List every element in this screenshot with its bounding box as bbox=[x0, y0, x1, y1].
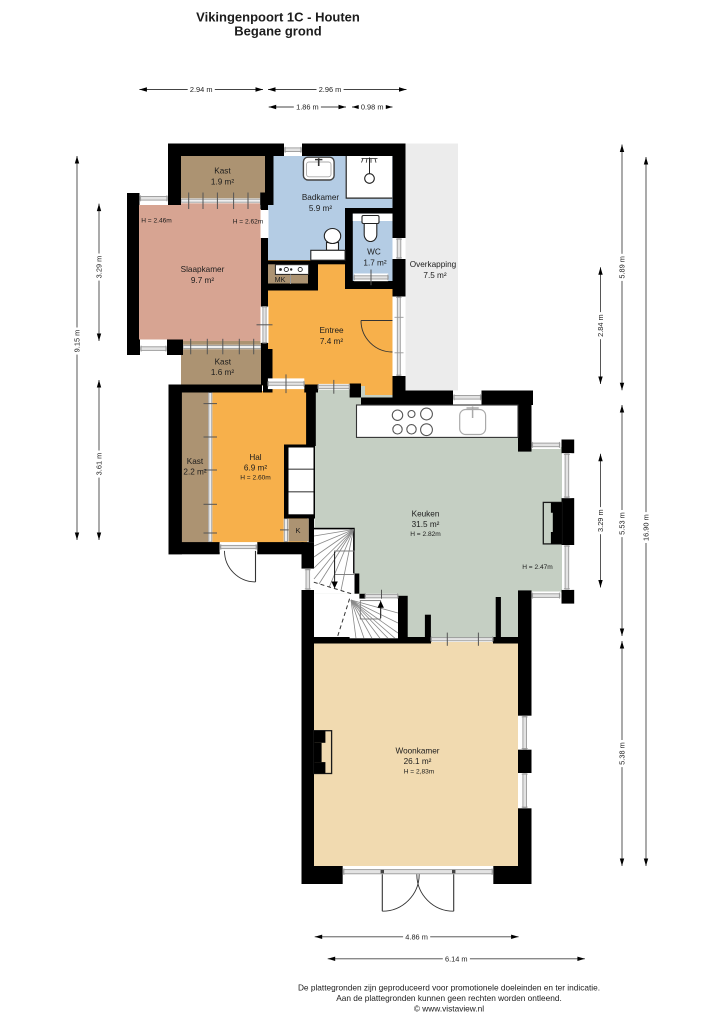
svg-text:5.38 m: 5.38 m bbox=[618, 742, 627, 765]
svg-text:Kast: Kast bbox=[187, 457, 204, 466]
svg-text:Aan de plattegronden kunnen ge: Aan de plattegronden kunnen geen rechten… bbox=[336, 993, 562, 1003]
svg-text:2.94 m: 2.94 m bbox=[190, 85, 213, 94]
svg-text:Slaapkamer: Slaapkamer bbox=[181, 265, 225, 274]
svg-text:Keuken: Keuken bbox=[412, 510, 440, 519]
svg-text:4.86 m: 4.86 m bbox=[405, 932, 428, 941]
svg-text:6.9 m²: 6.9 m² bbox=[244, 464, 267, 473]
svg-text:16.90 m: 16.90 m bbox=[642, 514, 651, 541]
svg-text:Begane grond: Begane grond bbox=[234, 24, 321, 39]
svg-text:1.86 m: 1.86 m bbox=[296, 103, 319, 112]
svg-text:Entree: Entree bbox=[319, 326, 344, 335]
svg-text:5.53 m: 5.53 m bbox=[618, 512, 627, 535]
svg-text:2.2 m²: 2.2 m² bbox=[183, 468, 206, 477]
svg-text:3.29 m: 3.29 m bbox=[95, 256, 104, 279]
svg-text:WC: WC bbox=[367, 248, 381, 257]
svg-text:31.5 m²: 31.5 m² bbox=[412, 520, 440, 529]
svg-text:2.84 m: 2.84 m bbox=[596, 314, 605, 337]
svg-text:1.7 m²: 1.7 m² bbox=[363, 259, 386, 268]
svg-text:MK: MK bbox=[275, 275, 286, 284]
svg-text:H = 2.47m: H = 2.47m bbox=[522, 564, 553, 571]
svg-text:2.96 m: 2.96 m bbox=[319, 85, 342, 94]
svg-text:26.1 m²: 26.1 m² bbox=[404, 757, 432, 766]
svg-text:Woonkamer: Woonkamer bbox=[396, 747, 440, 756]
svg-text:3.61 m: 3.61 m bbox=[95, 453, 104, 476]
svg-text:5.89 m: 5.89 m bbox=[618, 256, 627, 279]
svg-text:9.15 m: 9.15 m bbox=[73, 330, 82, 353]
svg-text:© www.vistaview.nl: © www.vistaview.nl bbox=[414, 1004, 484, 1014]
svg-text:0.98 m: 0.98 m bbox=[361, 103, 384, 112]
svg-text:H = 2.62m: H = 2.62m bbox=[233, 219, 264, 226]
svg-text:6.14 m: 6.14 m bbox=[445, 954, 468, 963]
svg-text:Overkapping: Overkapping bbox=[410, 260, 457, 269]
svg-text:7.5 m²: 7.5 m² bbox=[423, 271, 446, 280]
svg-text:H = 2.82m: H = 2.82m bbox=[410, 531, 441, 538]
svg-text:9.7 m²: 9.7 m² bbox=[191, 276, 214, 285]
svg-text:K: K bbox=[295, 526, 300, 535]
svg-text:H = 2.46m: H = 2.46m bbox=[141, 218, 172, 225]
svg-text:Hal: Hal bbox=[249, 453, 261, 462]
svg-text:Kast: Kast bbox=[214, 167, 231, 176]
svg-text:Kast: Kast bbox=[215, 358, 232, 367]
svg-text:Badkamer: Badkamer bbox=[302, 193, 340, 202]
svg-text:1.9 m²: 1.9 m² bbox=[211, 178, 234, 187]
svg-text:H = 2,83m: H = 2,83m bbox=[404, 769, 435, 776]
svg-text:1.6 m²: 1.6 m² bbox=[211, 368, 234, 377]
svg-text:7.4 m²: 7.4 m² bbox=[320, 337, 343, 346]
svg-text:3.29 m: 3.29 m bbox=[596, 509, 605, 532]
svg-text:5.9 m²: 5.9 m² bbox=[309, 204, 332, 213]
svg-text:De plattegronden zijn geproduc: De plattegronden zijn geproduceerd voor … bbox=[298, 983, 600, 993]
svg-text:Vikingenpoort 1C - Houten: Vikingenpoort 1C - Houten bbox=[196, 10, 360, 25]
svg-text:H = 2.60m: H = 2.60m bbox=[240, 475, 271, 482]
